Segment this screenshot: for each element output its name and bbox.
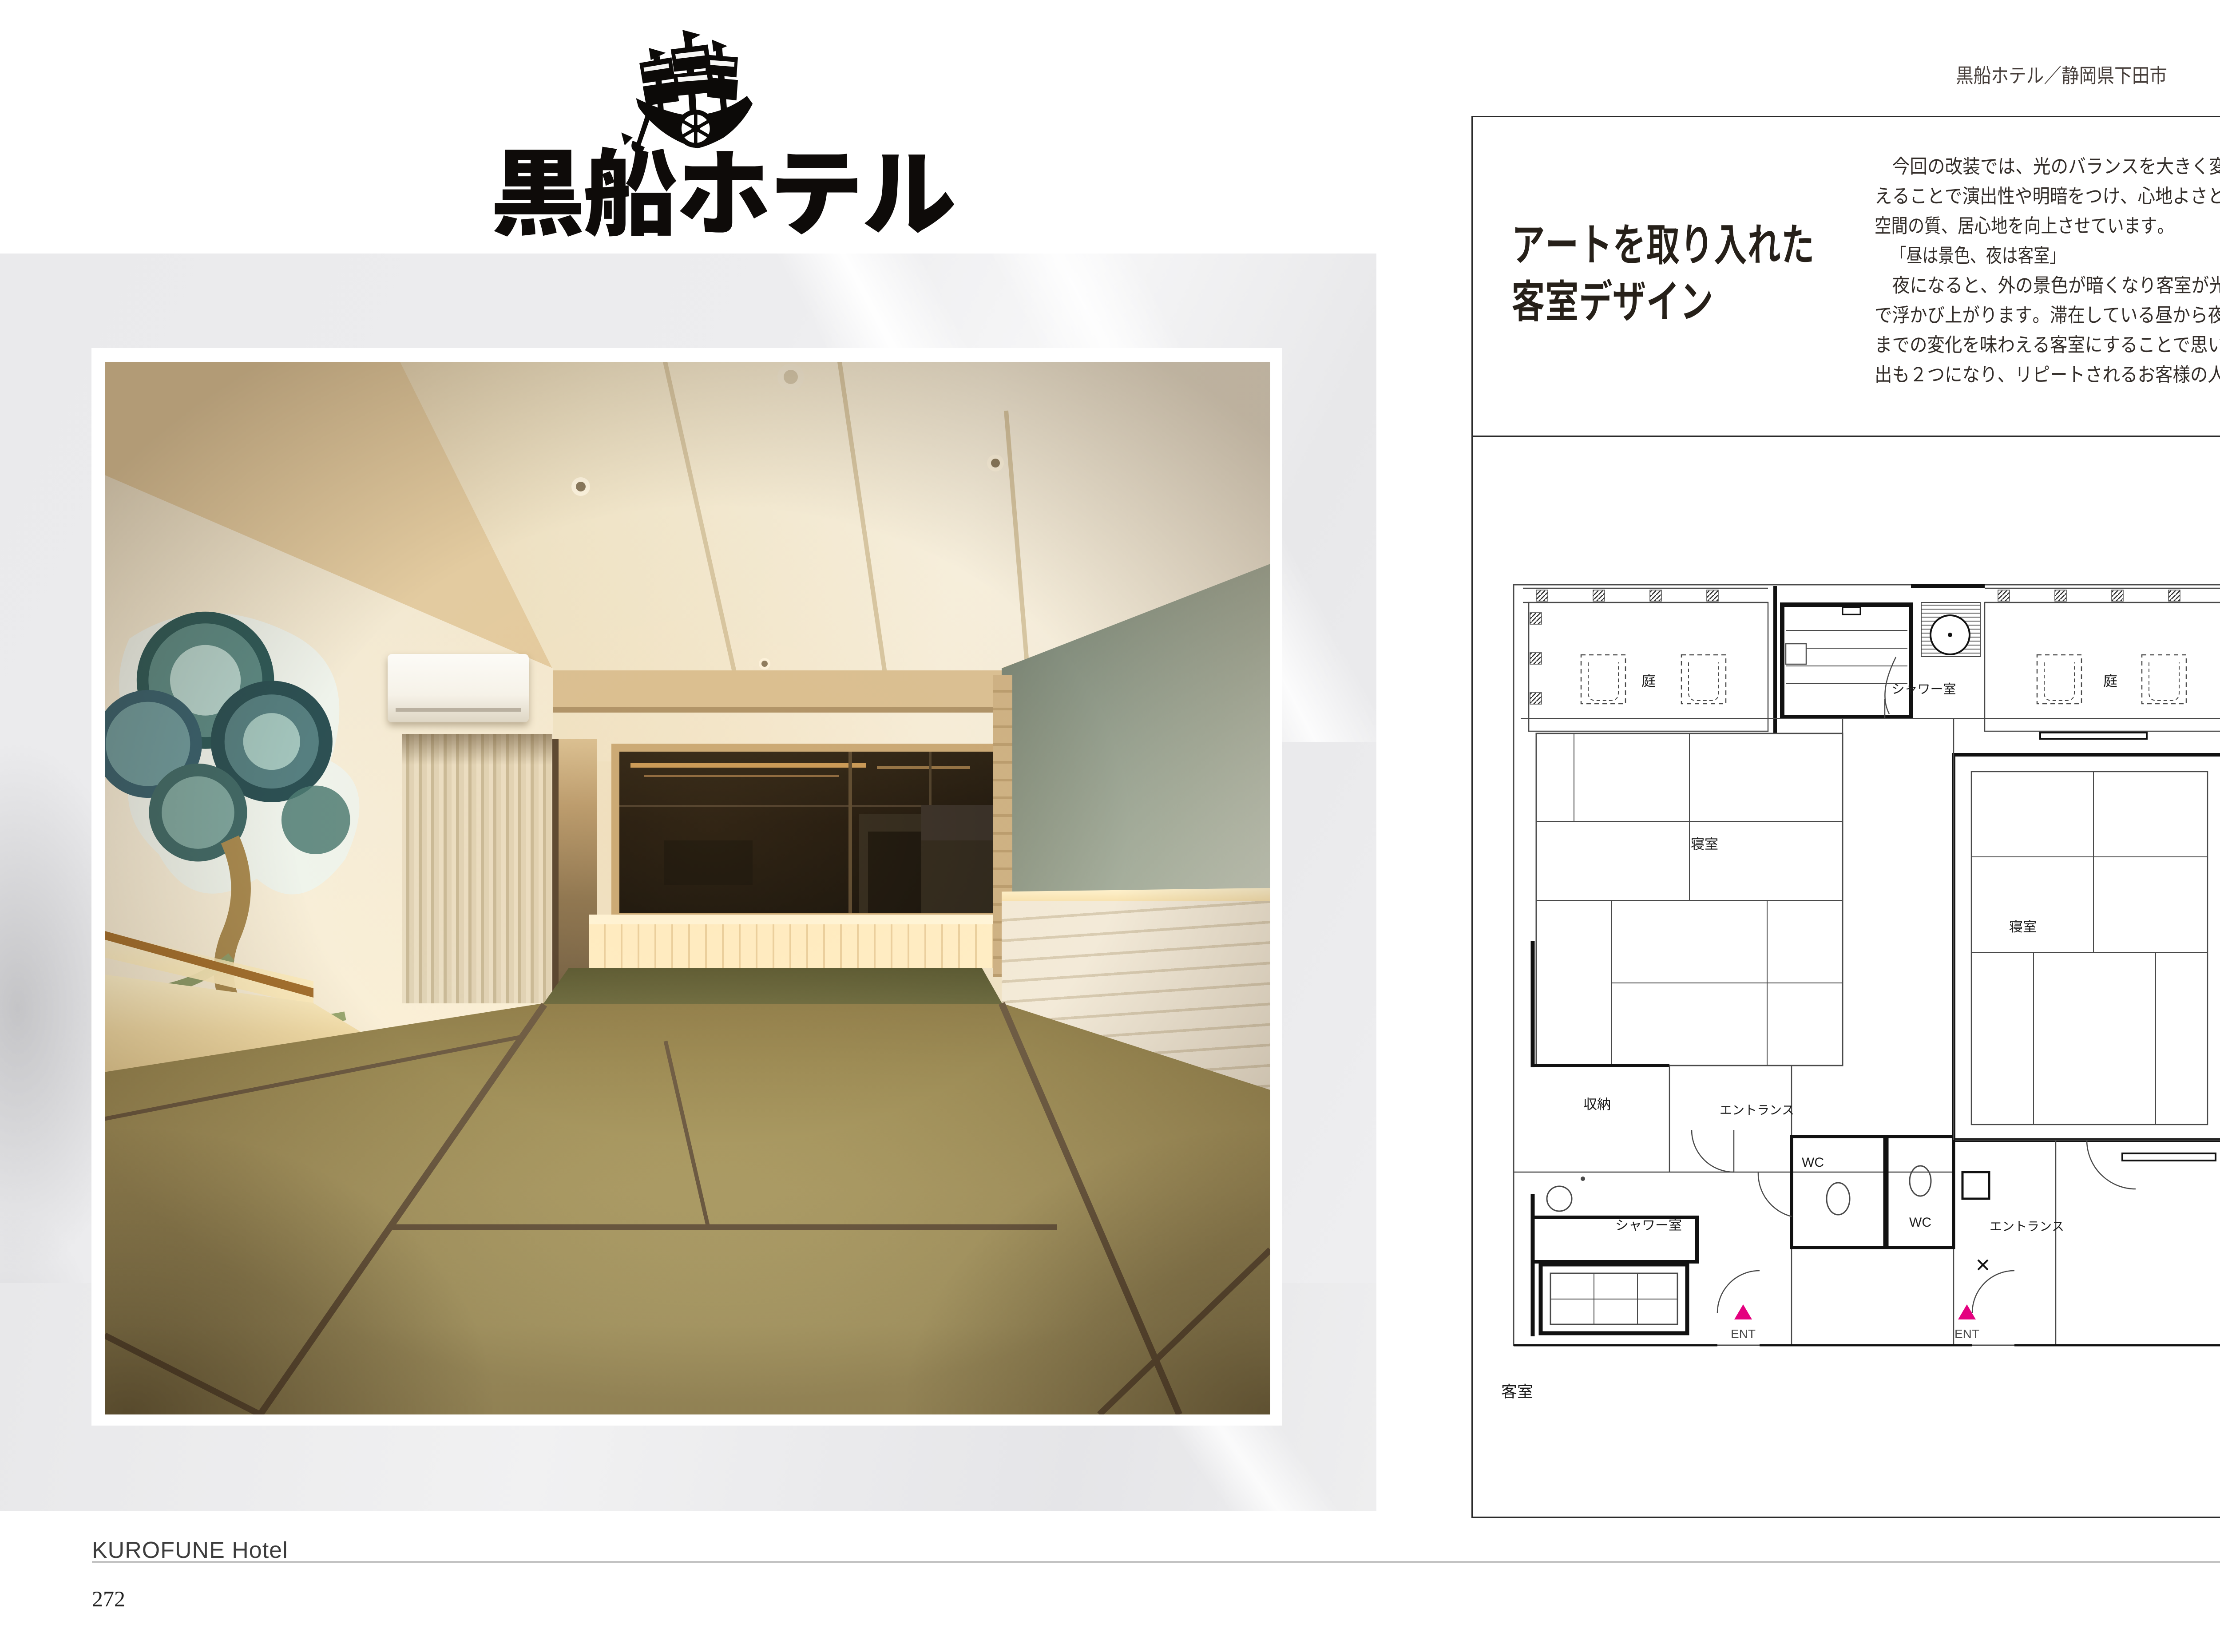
svg-text:ENT: ENT	[1954, 1327, 1979, 1341]
svg-text:ENT: ENT	[1731, 1327, 1756, 1341]
svg-text:WC: WC	[1802, 1155, 1824, 1170]
svg-text:WC: WC	[1909, 1215, 1931, 1230]
